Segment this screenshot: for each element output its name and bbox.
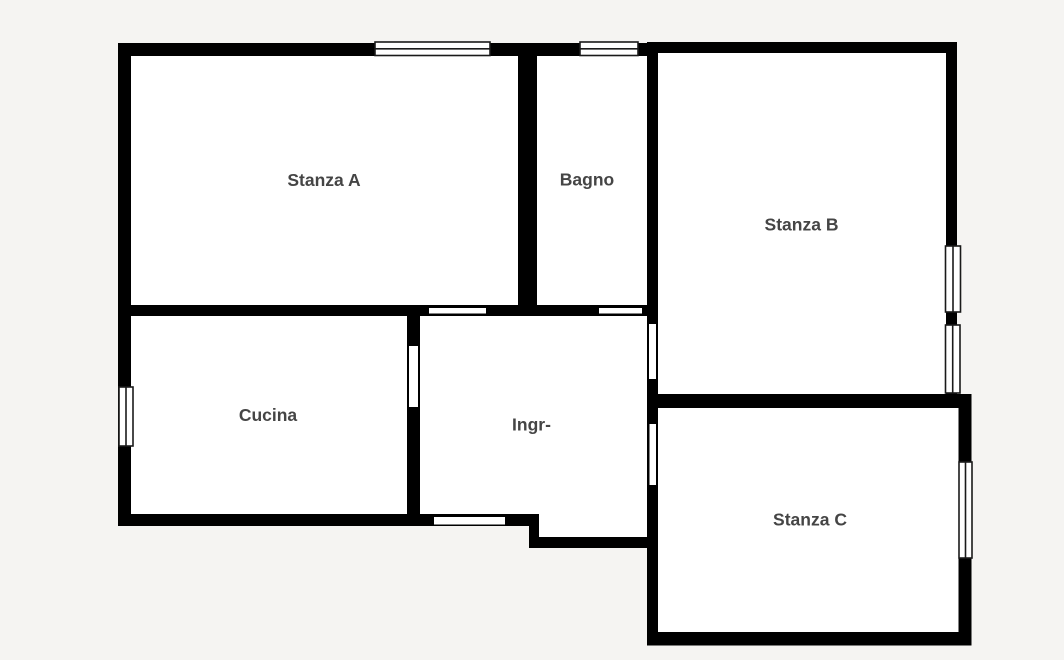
svg-text:Bagno: Bagno <box>560 170 614 190</box>
svg-text:Stanza C: Stanza C <box>773 510 847 530</box>
svg-text:Ingr-: Ingr- <box>512 415 551 435</box>
svg-text:Stanza B: Stanza B <box>765 215 839 235</box>
svg-text:Cucina: Cucina <box>239 405 298 425</box>
svg-text:Stanza A: Stanza A <box>287 170 361 190</box>
